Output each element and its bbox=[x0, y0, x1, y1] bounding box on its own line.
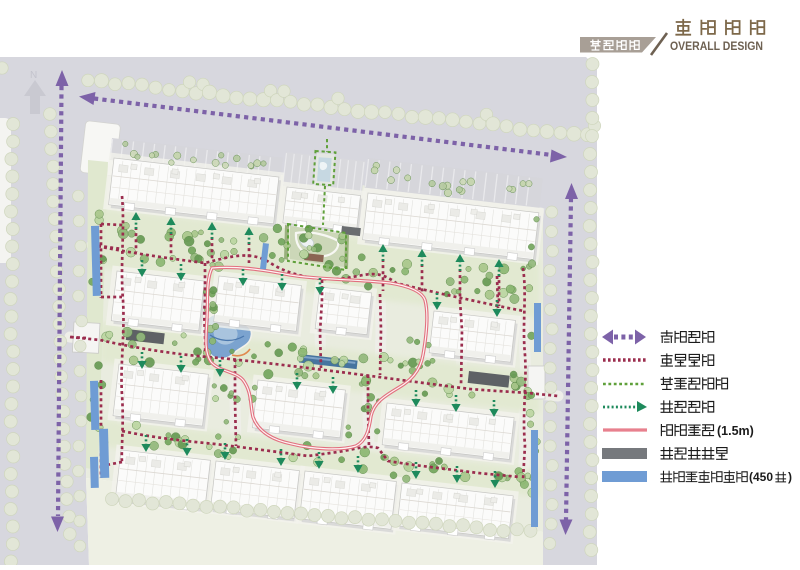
svg-text:(450: (450 bbox=[749, 470, 773, 484]
svg-text:(1.5m): (1.5m) bbox=[717, 424, 754, 438]
svg-text:): ) bbox=[788, 470, 792, 484]
svg-text:N: N bbox=[30, 70, 37, 81]
svg-text:OVERALL DESIGN: OVERALL DESIGN bbox=[670, 40, 763, 53]
